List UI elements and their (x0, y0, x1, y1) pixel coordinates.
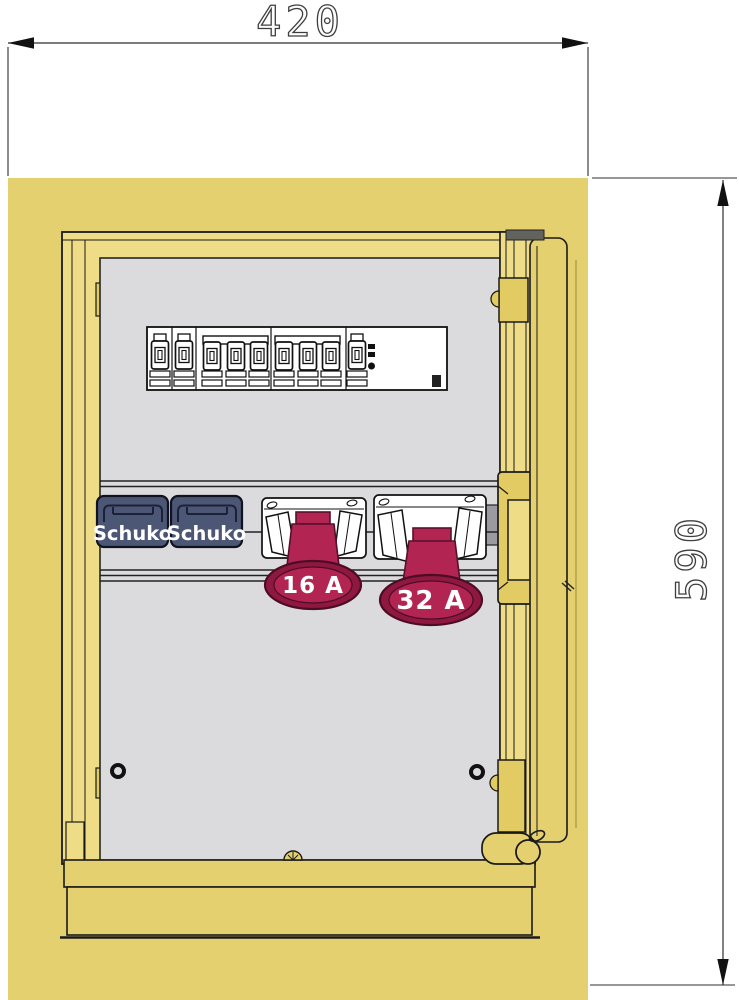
screw-hole-right (471, 766, 483, 778)
bottom-trim (60, 860, 540, 938)
screw-hole-left (112, 765, 124, 777)
drawing-canvas: Schuko Schuko 16 A 32 A (0, 0, 739, 1000)
dimension-width: 420 (8, 0, 588, 176)
distribution-board-drawing: Schuko Schuko 16 A 32 A (0, 0, 739, 1000)
schuko-socket-2: Schuko (167, 496, 246, 547)
frame-step-bottom-left (66, 822, 84, 862)
breaker-panel (147, 327, 447, 390)
dimension-width-label: 420 (256, 0, 344, 46)
dimension-height: 590 (590, 178, 737, 985)
schuko-1-label: Schuko (93, 522, 172, 545)
rcd-test-button (368, 363, 375, 370)
latch-knob (516, 840, 540, 864)
panel-end-clip (432, 375, 441, 387)
dimension-height-label: 590 (667, 514, 716, 602)
schuko-socket-1: Schuko (93, 496, 172, 547)
rcd-mark-1 (368, 344, 375, 349)
arrow-left (8, 37, 34, 49)
arrow-right (562, 37, 588, 49)
arrow-up (717, 180, 728, 206)
cee-16a-label: 16 A (282, 573, 344, 599)
schuko-2-label: Schuko (167, 522, 246, 545)
door-top-cap (506, 230, 544, 240)
cee-socket-16a: 16 A (262, 498, 366, 609)
cee-32a-label: 32 A (396, 586, 465, 616)
arrow-down (717, 959, 728, 985)
rcd-mark-2 (368, 352, 375, 357)
